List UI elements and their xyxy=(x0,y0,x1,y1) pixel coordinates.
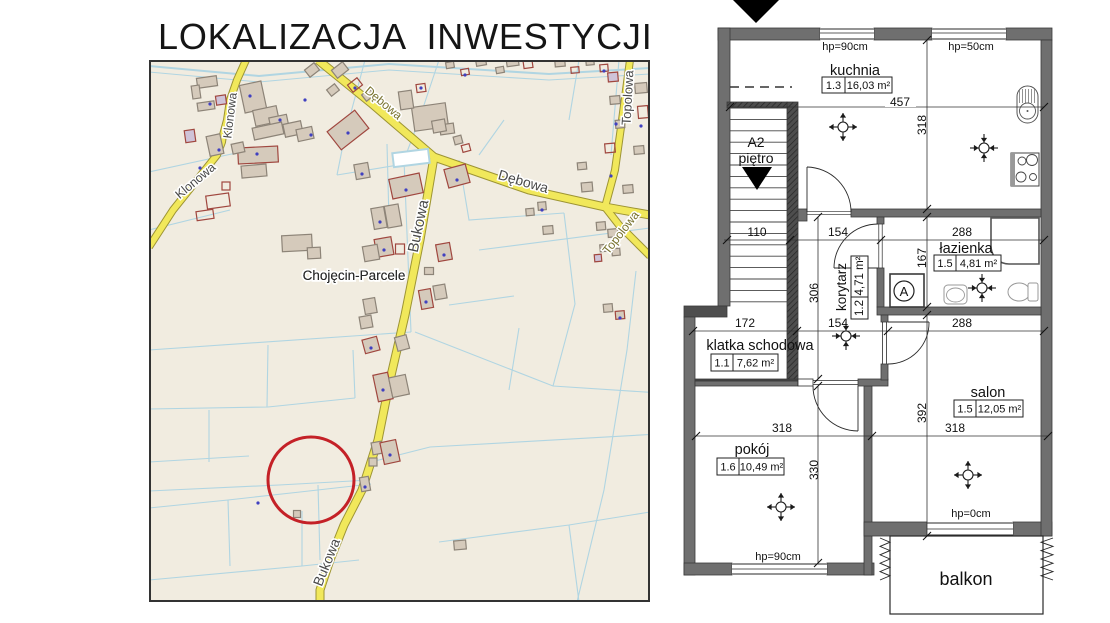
svg-text:110: 110 xyxy=(747,225,766,239)
svg-text:pokój: pokój xyxy=(735,442,770,458)
svg-text:Topolowa: Topolowa xyxy=(619,69,637,125)
svg-text:hp=0cm: hp=0cm xyxy=(951,508,990,520)
svg-text:Chojęcin-Parcele: Chojęcin-Parcele xyxy=(303,268,406,283)
svg-text:16,03 m²: 16,03 m² xyxy=(847,80,891,92)
svg-text:318: 318 xyxy=(945,421,965,435)
svg-text:4,81 m²: 4,81 m² xyxy=(960,258,998,270)
svg-text:1.5: 1.5 xyxy=(957,404,972,416)
svg-text:167: 167 xyxy=(915,248,929,268)
svg-text:1.2: 1.2 xyxy=(854,300,866,316)
svg-text:288: 288 xyxy=(952,316,972,330)
svg-text:392: 392 xyxy=(915,403,929,423)
svg-text:288: 288 xyxy=(952,225,972,239)
svg-text:12,05 m²: 12,05 m² xyxy=(978,404,1022,416)
svg-text:1.6: 1.6 xyxy=(720,462,735,474)
svg-text:318: 318 xyxy=(915,115,929,135)
svg-text:hp=90cm: hp=90cm xyxy=(822,41,868,53)
svg-text:4,71 m²: 4,71 m² xyxy=(854,256,866,295)
svg-text:klatka schodowa: klatka schodowa xyxy=(706,338,814,354)
svg-text:1.5: 1.5 xyxy=(937,258,952,270)
svg-text:balkon: balkon xyxy=(939,569,992,589)
svg-text:hp=90cm: hp=90cm xyxy=(755,551,801,563)
svg-text:306: 306 xyxy=(807,283,821,303)
svg-text:korytarz: korytarz xyxy=(834,263,849,311)
svg-text:A: A xyxy=(900,284,909,299)
svg-text:1.3: 1.3 xyxy=(826,80,841,92)
svg-text:1.1: 1.1 xyxy=(714,358,729,370)
svg-text:salon: salon xyxy=(971,385,1006,401)
svg-text:7,62 m²: 7,62 m² xyxy=(737,358,775,370)
svg-text:A2: A2 xyxy=(747,134,764,150)
svg-text:318: 318 xyxy=(772,421,792,435)
svg-text:457: 457 xyxy=(890,95,910,109)
svg-text:hp=50cm: hp=50cm xyxy=(948,41,994,53)
svg-text:piętro: piętro xyxy=(738,150,773,166)
svg-text:154: 154 xyxy=(828,316,848,330)
svg-text:154: 154 xyxy=(828,225,848,239)
svg-text:330: 330 xyxy=(807,460,821,480)
svg-text:172: 172 xyxy=(735,316,755,330)
svg-text:10,49 m²: 10,49 m² xyxy=(740,462,784,474)
